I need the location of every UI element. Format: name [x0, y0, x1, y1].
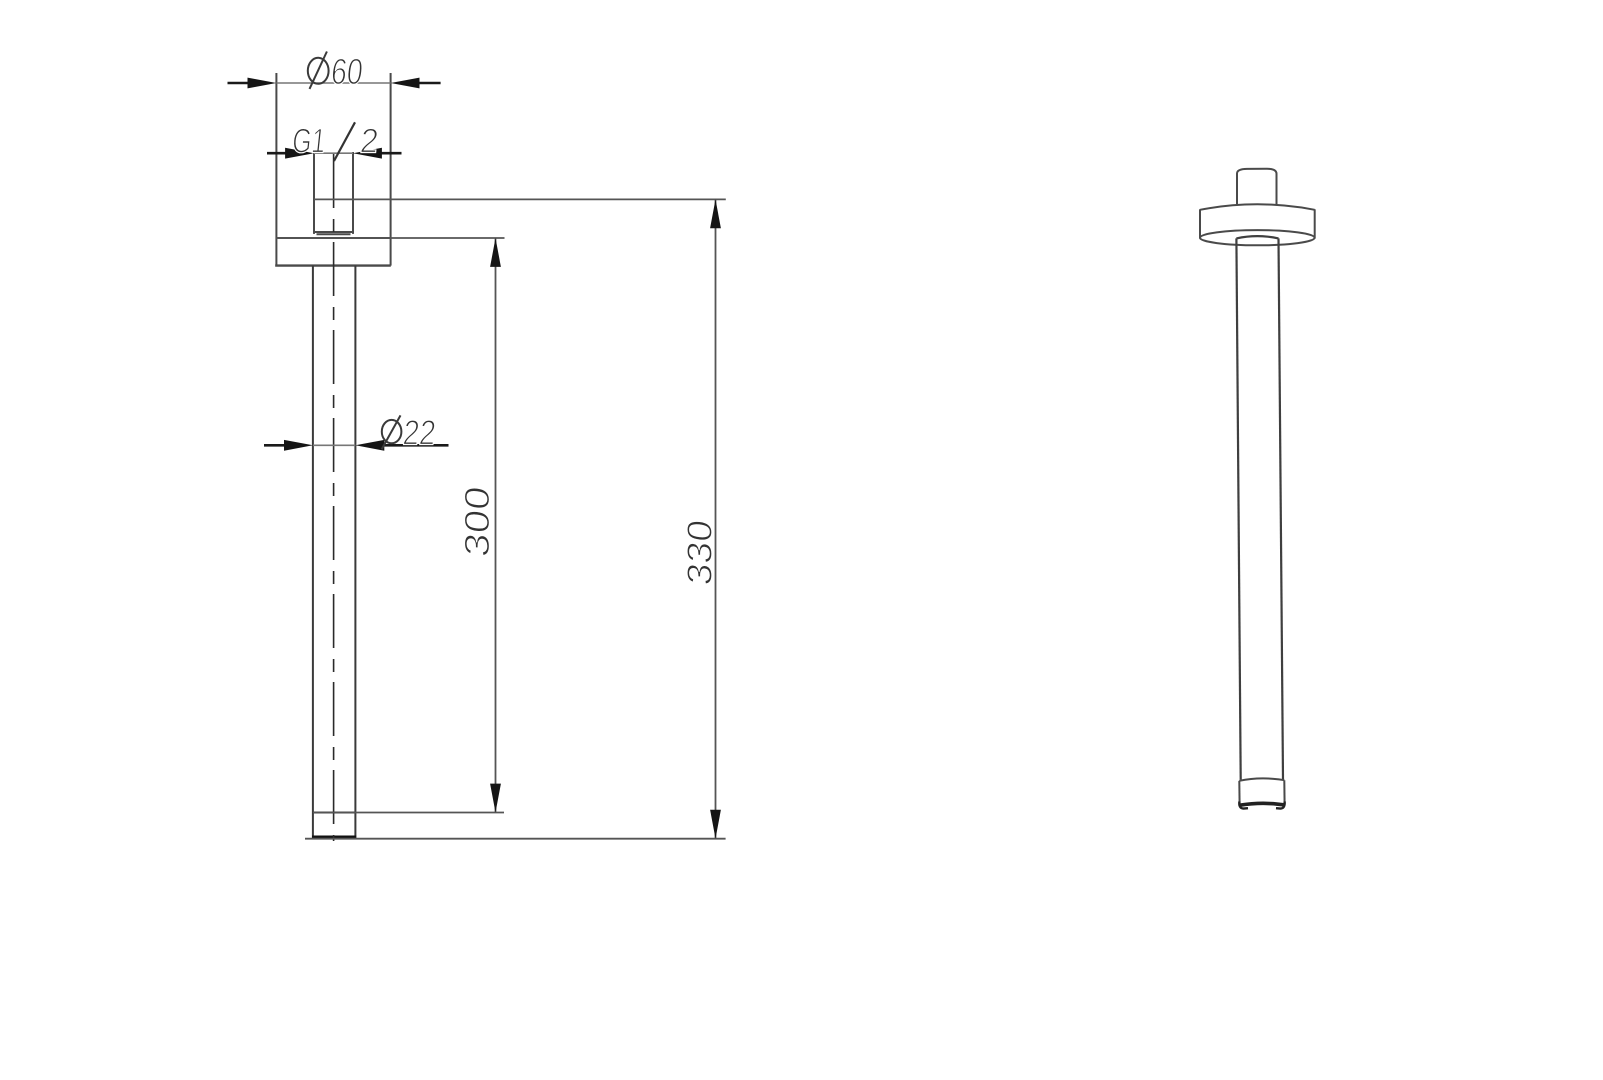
svg-text:300: 300 — [458, 484, 497, 558]
svg-text:G1: G1 — [290, 122, 327, 160]
svg-text:60: 60 — [329, 51, 365, 92]
svg-text:22: 22 — [401, 414, 438, 453]
svg-text:330: 330 — [681, 518, 720, 587]
